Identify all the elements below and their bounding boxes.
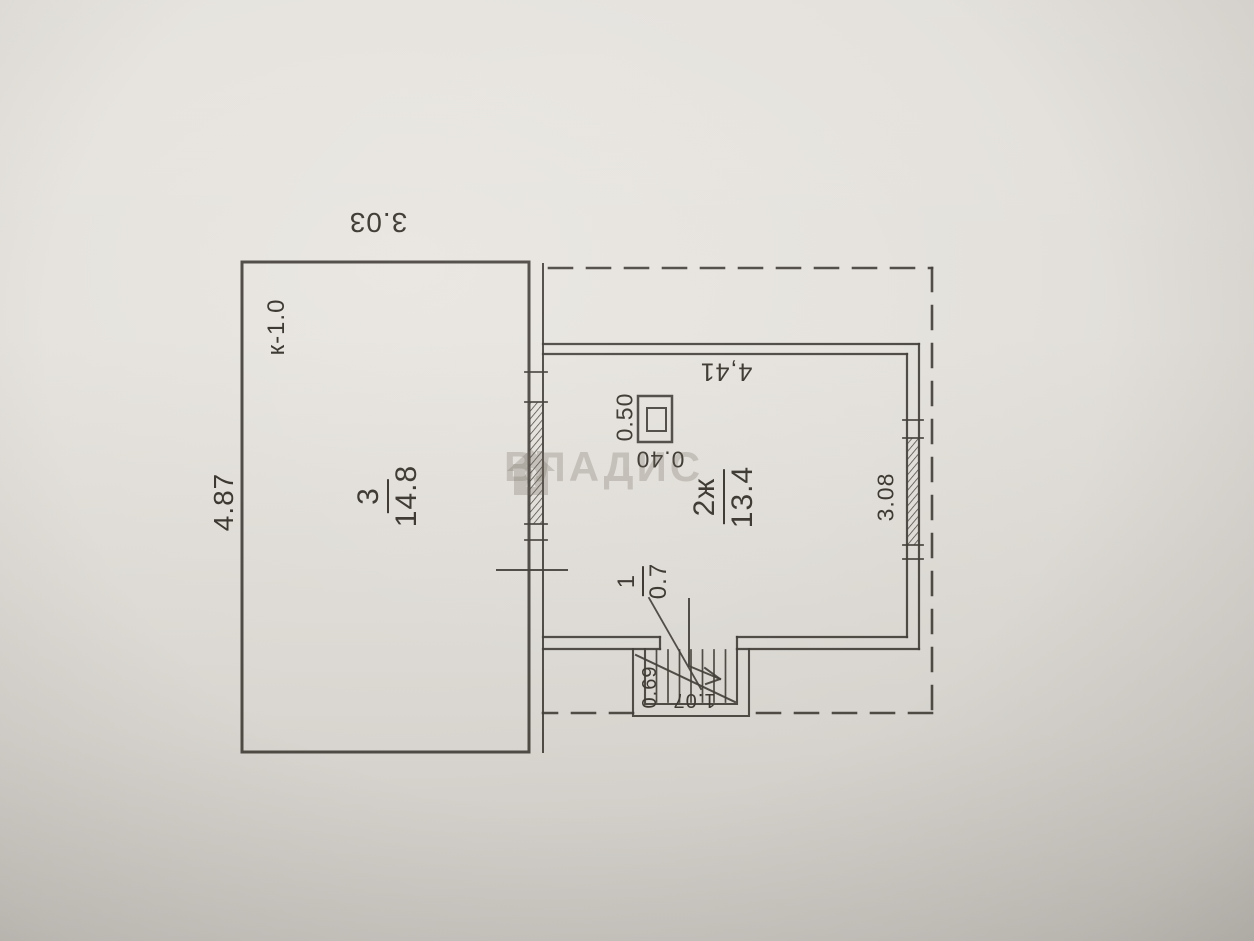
stair-length-dim: 1.07	[673, 690, 716, 710]
watermark: ВЛАДИС	[504, 446, 703, 488]
stair-width-dim: 0.69	[640, 666, 660, 709]
room3-number: 3	[354, 479, 389, 513]
room3-label: 3 14.8	[354, 465, 422, 527]
room1-number: 1	[615, 566, 644, 596]
room1-area: 0.7	[644, 563, 671, 599]
floorplan-photo: 3.03 к-1.0 4.87 3 14.8 4,41 0.50 0.40 2ж…	[0, 0, 1254, 941]
room1-label: 1 0.7	[615, 563, 671, 599]
room2-area: 13.4	[725, 466, 758, 528]
stove-symbol	[638, 396, 672, 442]
stair-direction-arrow	[689, 599, 720, 684]
dimension-room2-right: 3.08	[875, 473, 898, 522]
wall-material-mark: к-1.0	[265, 299, 289, 356]
dimension-top: 3.03	[349, 208, 408, 236]
dimension-room2-top: 4,41	[700, 359, 753, 384]
room3-area: 14.8	[389, 465, 422, 527]
dimension-left: 4.87	[210, 473, 238, 532]
house-icon	[504, 446, 558, 498]
stove-width-dim: 0.50	[614, 393, 637, 442]
